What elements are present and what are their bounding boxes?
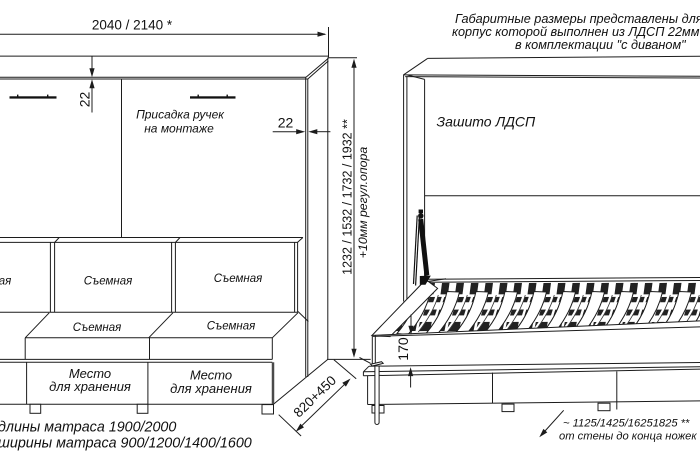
svg-text:Съемная: Съемная xyxy=(214,273,262,285)
svg-text:170: 170 xyxy=(395,337,411,361)
svg-text:Съемная: Съемная xyxy=(0,276,11,288)
svg-text:для хранения: для хранения xyxy=(170,381,252,396)
svg-text:Присадка ручек: Присадка ручек xyxy=(136,108,225,122)
svg-text:в комплектации "с диваном": в комплектации "с диваном" xyxy=(515,38,686,52)
svg-text:на монтаже: на монтаже xyxy=(144,122,214,136)
svg-text:длины матраса 1900/2000: длины матраса 1900/2000 xyxy=(0,420,176,436)
svg-text:2040 / 2140 *: 2040 / 2140 * xyxy=(92,18,173,33)
svg-text:+10мм регул.опора: +10мм регул.опора xyxy=(356,147,370,259)
svg-text:~ 1125/1425/16251825 **: ~ 1125/1425/16251825 ** xyxy=(563,418,690,430)
svg-text:корпус которой выполнен из ЛДС: корпус которой выполнен из ЛДСП 22мм тол… xyxy=(452,25,700,39)
svg-text:1232 / 1532 / 1732 / 1932 **: 1232 / 1532 / 1732 / 1932 ** xyxy=(341,119,355,275)
svg-text:Зашито ЛДСП: Зашито ЛДСП xyxy=(437,114,537,130)
svg-text:Габаритные размеры представлен: Габаритные размеры представлены для кров… xyxy=(455,12,700,26)
svg-text:22: 22 xyxy=(278,114,294,130)
svg-text:Съемная: Съемная xyxy=(84,276,132,288)
svg-text:Съемная: Съемная xyxy=(207,321,255,333)
svg-text:для хранения: для хранения xyxy=(49,379,131,394)
svg-text:от стены до конца ножек: от стены до конца ножек xyxy=(559,431,697,443)
svg-text:Съемная: Съемная xyxy=(73,322,121,334)
svg-text:22: 22 xyxy=(77,92,93,108)
svg-text:ширины матраса 900/1200/1400/1: ширины матраса 900/1200/1400/1600 xyxy=(0,436,252,452)
